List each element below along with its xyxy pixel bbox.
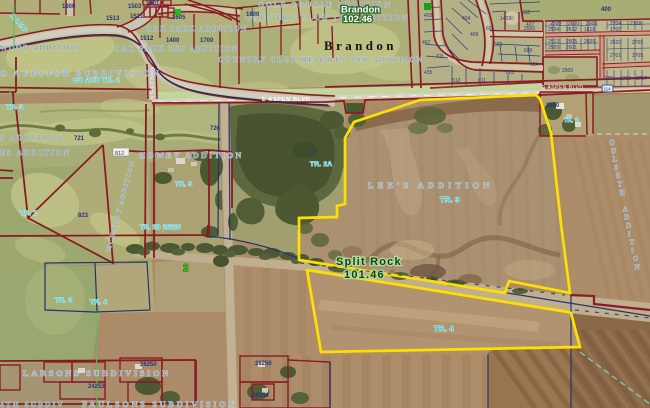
svg-text:2005: 2005 <box>306 149 317 155</box>
svg-text:T: T <box>629 239 634 247</box>
svg-text:Brandon: Brandon <box>324 38 397 53</box>
svg-text:1800: 1800 <box>246 12 260 18</box>
svg-text:E ASPEN BLVD: E ASPEN BLVD <box>542 85 583 91</box>
svg-text:2701: 2701 <box>610 53 621 59</box>
svg-text:2709: 2709 <box>620 76 631 82</box>
svg-text:823: 823 <box>78 213 89 219</box>
svg-text:TR. 3: TR. 3 <box>55 297 72 304</box>
svg-text:WOOD ADDITION: WOOD ADDITION <box>0 43 81 52</box>
svg-text:2717: 2717 <box>636 76 647 82</box>
svg-text:2500: 2500 <box>562 68 573 74</box>
svg-text:1403: 1403 <box>500 16 511 22</box>
svg-text:720: 720 <box>210 126 221 132</box>
svg-text:D: D <box>624 214 629 222</box>
svg-text:TR. 2B 26226: TR. 2B 26226 <box>140 225 181 231</box>
svg-text:102.46: 102.46 <box>343 14 372 25</box>
svg-text:I: I <box>631 247 634 255</box>
svg-text:H: H <box>619 189 625 197</box>
svg-text:ES ADDITION: ES ADDITION <box>0 148 71 157</box>
svg-text:COUNTRY CLUB HEIGHTS 2ND ADDIT: COUNTRY CLUB HEIGHTS 2ND ADDITION <box>218 55 424 64</box>
svg-text:1700: 1700 <box>200 38 214 44</box>
svg-text:24253: 24253 <box>88 384 105 390</box>
svg-text:TR. 2: TR. 2 <box>564 118 578 124</box>
svg-text:L: L <box>612 156 617 164</box>
svg-text:OAK PARK ADDITION: OAK PARK ADDITION <box>146 24 248 33</box>
svg-text:1501: 1501 <box>146 1 160 7</box>
svg-text:605: 605 <box>506 70 515 76</box>
svg-text:PAULSONS SUBDIVISION: PAULSONS SUBDIVISION <box>82 399 237 408</box>
svg-text:26254: 26254 <box>252 393 269 399</box>
svg-text:G: G <box>609 139 615 147</box>
svg-text:411: 411 <box>436 54 444 60</box>
svg-text:26250: 26250 <box>140 362 157 368</box>
svg-text:1618: 1618 <box>584 27 595 33</box>
svg-text:TR. 2A: TR. 2A <box>310 161 332 168</box>
svg-text:Split Rock: Split Rock <box>336 256 402 268</box>
svg-text:1513: 1513 <box>106 16 120 22</box>
svg-text:I: I <box>628 230 631 238</box>
svg-text:409: 409 <box>470 32 479 38</box>
svg-text:TR. 3: TR. 3 <box>440 195 460 204</box>
svg-text:TR. 2: TR. 2 <box>20 210 37 217</box>
svg-text:2509: 2509 <box>548 45 559 51</box>
svg-text:A: A <box>623 205 628 213</box>
svg-text:512: 512 <box>452 78 461 84</box>
svg-text:2620: 2620 <box>610 40 621 46</box>
svg-text:2701: 2701 <box>604 76 615 82</box>
svg-text:1512: 1512 <box>140 36 154 42</box>
svg-text:407: 407 <box>422 40 431 46</box>
svg-text:403: 403 <box>424 13 433 19</box>
svg-text:2612: 2612 <box>566 27 577 33</box>
svg-text:U: U <box>611 147 616 155</box>
svg-text:1503: 1503 <box>128 4 142 10</box>
svg-text:COUNTRY CLUB 1ST ADDITION: COUNTRY CLUB 1ST ADDITION <box>245 13 410 22</box>
svg-text:611: 611 <box>478 78 486 84</box>
svg-text:1605: 1605 <box>172 15 186 21</box>
svg-text:601: 601 <box>486 26 495 32</box>
svg-text:400: 400 <box>601 7 612 13</box>
svg-text:LARSONS SUBDIVISION: LARSONS SUBDIVISION <box>23 368 171 378</box>
svg-text:2504: 2504 <box>548 27 559 33</box>
svg-text:600: 600 <box>524 48 533 54</box>
svg-text:HOWEY ADDITION: HOWEY ADDITION <box>139 151 244 160</box>
svg-text:D: D <box>626 222 631 230</box>
svg-text:E: E <box>616 172 621 180</box>
svg-text:1800: 1800 <box>62 4 76 10</box>
svg-text:2705: 2705 <box>632 53 643 59</box>
svg-text:114: 114 <box>604 87 612 92</box>
svg-text:812: 812 <box>115 151 124 157</box>
svg-text:404: 404 <box>462 16 471 22</box>
svg-text:2600: 2600 <box>546 103 560 109</box>
svg-text:2705: 2705 <box>632 40 643 46</box>
svg-text:1400: 1400 <box>166 38 180 44</box>
svg-text:O: O <box>633 255 639 263</box>
svg-text:2609: 2609 <box>584 39 595 45</box>
svg-text:T: T <box>618 181 623 189</box>
svg-text:N SPLIT ROCK: N SPLIT ROCK <box>150 66 155 99</box>
svg-text:2: 2 <box>183 263 189 274</box>
svg-text:S: S <box>614 164 618 172</box>
svg-text:2708: 2708 <box>630 21 641 27</box>
svg-text:435: 435 <box>424 70 433 76</box>
svg-text:26250: 26250 <box>255 361 272 367</box>
svg-text:OAK PARK 2ND ADDITION: OAK PARK 2ND ADDITION <box>115 44 238 53</box>
svg-text:432: 432 <box>522 10 531 16</box>
svg-text:TR. 3: TR. 3 <box>175 181 192 188</box>
svg-text:1700: 1700 <box>610 27 621 33</box>
svg-text:TR. 4: TR. 4 <box>90 299 107 306</box>
svg-text:523: 523 <box>494 42 503 48</box>
svg-text:4TH SUBDIV: 4TH SUBDIV <box>0 400 65 408</box>
svg-text:E ASPEN BLVD: E ASPEN BLVD <box>262 97 310 103</box>
svg-text:2500: 2500 <box>524 26 535 32</box>
svg-text:TR. 3: TR. 3 <box>6 104 23 111</box>
svg-text:S ADDITION: S ADDITION <box>0 133 64 142</box>
svg-text:CO AUD TR. 4: CO AUD TR. 4 <box>73 77 120 84</box>
svg-text:101.46: 101.46 <box>344 269 385 281</box>
svg-text:1521: 1521 <box>130 14 144 20</box>
svg-text:604: 604 <box>530 62 539 68</box>
svg-text:2601: 2601 <box>566 45 577 51</box>
svg-text:TR. 4: TR. 4 <box>434 324 454 333</box>
svg-text:LEE'S ADDITION: LEE'S ADDITION <box>368 180 493 190</box>
svg-text:N: N <box>635 264 640 272</box>
svg-text:721: 721 <box>74 136 85 142</box>
